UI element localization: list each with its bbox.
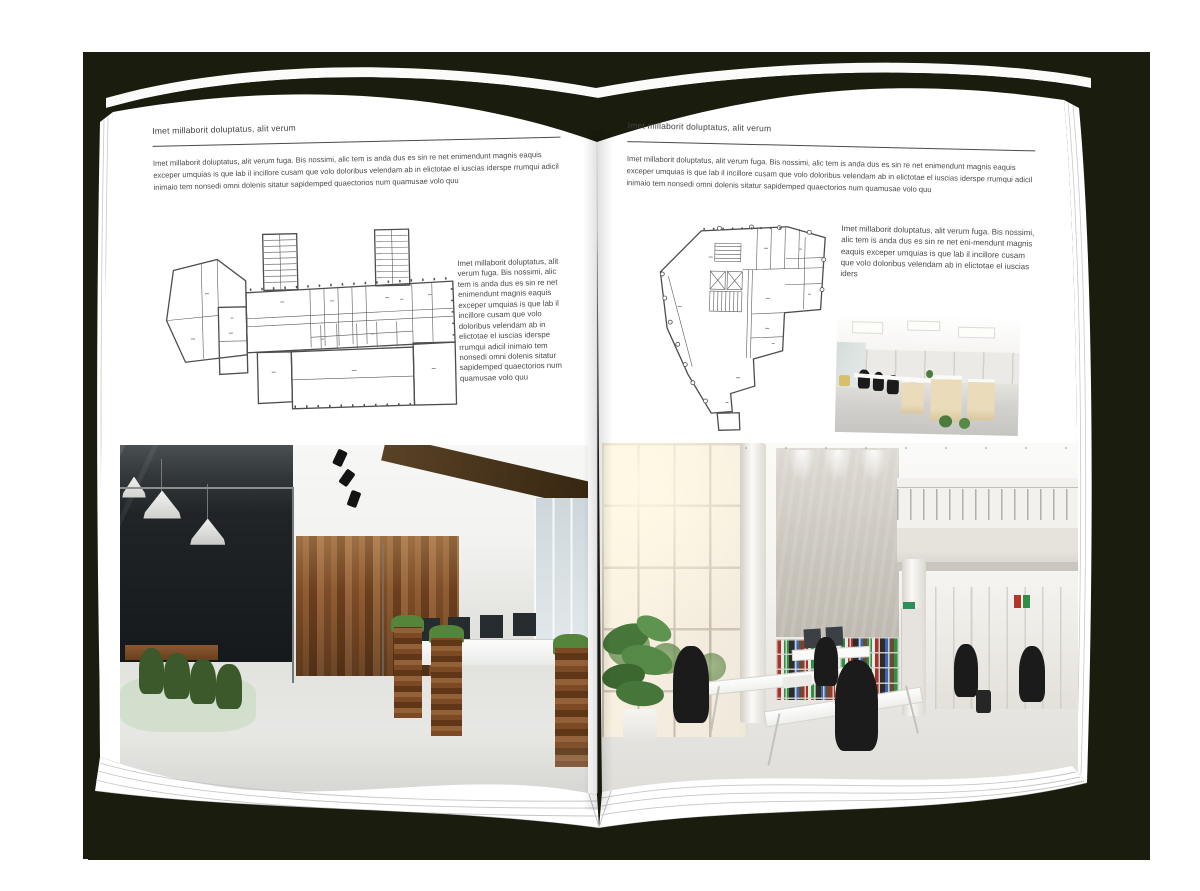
office-chair: [835, 660, 878, 751]
lamp-cord: [207, 484, 208, 521]
plant: [926, 370, 933, 378]
wood-planter: [431, 638, 461, 736]
wood-cabinet: [901, 380, 924, 414]
green-chair: [139, 648, 165, 694]
door: [901, 608, 921, 699]
wood-planter: [394, 627, 422, 718]
trash-bin: [976, 690, 991, 713]
open-office-photo: [602, 443, 1078, 793]
ceiling-light-panel: [958, 326, 995, 338]
magazine-spread-mockup: Imet millaborit doluptatus, alit verum I…: [0, 0, 1200, 891]
plant: [939, 415, 952, 427]
office-chair: [814, 637, 838, 686]
green-chair: [216, 664, 242, 710]
safety-sign: [1023, 595, 1031, 607]
small-office-photo: [835, 313, 1021, 436]
floor-shadow: [120, 732, 588, 795]
side-paragraph: Imet millaborit doluptatus, alit verum f…: [457, 257, 564, 385]
ceiling-light-panel: [852, 322, 884, 334]
mezzanine-railing: [897, 489, 1078, 521]
monitor: [513, 613, 535, 636]
downlight-glow: [788, 450, 817, 482]
meeting-room-photo: [120, 445, 588, 795]
plant-pot: [623, 709, 656, 748]
page-title: Imet millaborit doluptatus, alit verum: [628, 120, 772, 133]
office-chair: [1019, 646, 1045, 702]
green-chair: [164, 653, 190, 699]
side-paragraph: Imet millaborit doluptatus, alit verum f…: [840, 223, 1037, 284]
page-title: Imet millaborit doluptatus, alit verum: [152, 123, 296, 136]
downlight-glow: [823, 450, 852, 482]
sofa: [839, 375, 850, 386]
wood-cabinet: [967, 379, 995, 421]
ceiling-lights-row: [745, 447, 1078, 449]
office-chair: [954, 644, 978, 697]
intro-paragraph: Imet millaborit doluptatus, alit verum f…: [626, 153, 1039, 198]
floor-plan-right: [635, 215, 840, 434]
railing-top-rail: [897, 487, 1078, 489]
monitor: [480, 615, 502, 638]
downlight-glow: [859, 450, 888, 482]
track-spotlight: [347, 489, 362, 507]
first-aid-sign: [1014, 595, 1022, 607]
glass-reflection: [120, 445, 293, 662]
floor-plan-left: [158, 218, 457, 417]
intro-paragraph: Imet millaborit doluptatus, alit verum f…: [153, 149, 564, 194]
track-spotlight: [332, 449, 348, 468]
window-wall: [534, 498, 588, 649]
exit-sign: [903, 602, 915, 609]
plant: [959, 418, 970, 429]
glass-door-edge: [382, 543, 384, 676]
ceiling-light-panel: [907, 320, 940, 331]
title-divider: [153, 137, 561, 147]
office-chair: [858, 369, 870, 388]
track-spotlight: [339, 468, 356, 487]
glass-frame: [120, 487, 293, 489]
office-chair: [673, 646, 709, 723]
title-divider: [627, 141, 1035, 151]
green-chair: [190, 659, 216, 705]
glass-frame: [292, 487, 294, 683]
